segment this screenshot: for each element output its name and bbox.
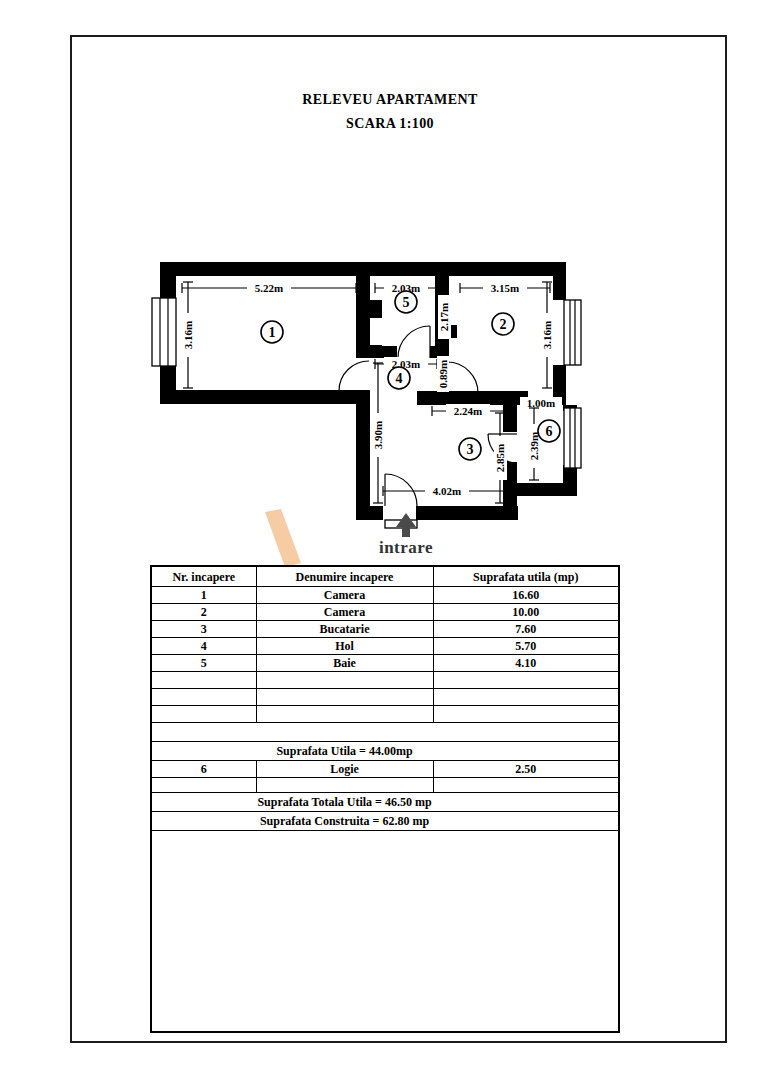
suprafata-construita-row: Suprafata Construita = 62.80 mp xyxy=(151,812,619,831)
document-scale: SCARA 1:100 xyxy=(8,116,764,132)
table-row: 5 Baie 4.10 xyxy=(151,655,619,672)
svg-text:5.22m: 5.22m xyxy=(255,282,283,294)
dim-logie-width: 1.00m xyxy=(520,397,562,409)
svg-text:3.90m: 3.90m xyxy=(372,421,384,449)
empty-span-row xyxy=(151,723,619,742)
svg-text:6: 6 xyxy=(546,424,553,439)
table-row: 1 Camera 16.60 xyxy=(151,587,619,604)
svg-text:4: 4 xyxy=(396,371,403,386)
room-label-1: 1 xyxy=(261,321,283,343)
table-row-logie: 6 Logie 2.50 xyxy=(151,761,619,778)
svg-text:2.24m: 2.24m xyxy=(454,405,482,417)
header-suprafata: Suprafata utila (mp) xyxy=(433,566,619,587)
svg-text:2.17m: 2.17m xyxy=(438,303,450,331)
cell-name: Camera xyxy=(256,604,433,621)
window-room1 xyxy=(152,298,176,366)
svg-text:1.00m: 1.00m xyxy=(527,397,555,409)
svg-text:5: 5 xyxy=(403,295,410,310)
empty-row xyxy=(151,672,619,689)
suprafata-utila-row: Suprafata Utila = 44.00mp xyxy=(151,742,619,761)
empty-row xyxy=(151,778,619,793)
dim-room2-width: 3.15m xyxy=(460,281,550,294)
header-nr: Nr. incapere xyxy=(151,566,256,587)
door-bathroom xyxy=(398,326,430,358)
watermark-stripe xyxy=(265,509,301,567)
cell-area: 5.70 xyxy=(433,638,619,655)
room-label-3: 3 xyxy=(459,438,481,460)
cell-nr: 5 xyxy=(151,655,256,672)
walls xyxy=(160,262,577,520)
svg-text:2.85m: 2.85m xyxy=(494,444,506,472)
dim-room1-width: 5.22m xyxy=(182,281,356,294)
window-logie xyxy=(564,408,581,468)
door-entrance xyxy=(385,474,417,528)
dim-room2-height: 3.16m xyxy=(541,282,554,388)
empty-row xyxy=(151,706,619,723)
entrance-arrow-icon xyxy=(396,513,416,537)
table-row: 3 Bucatarie 7.60 xyxy=(151,621,619,638)
suprafata-utila-label: Suprafata Utila = 44.00mp xyxy=(256,742,433,761)
cell-name: Bucatarie xyxy=(256,621,433,638)
cell-name: Camera xyxy=(256,587,433,604)
cell-nr: 2 xyxy=(151,604,256,621)
svg-text:3.16m: 3.16m xyxy=(541,321,553,349)
svg-text:4.02m: 4.02m xyxy=(433,485,461,497)
table-header-row: Nr. incapere Denumire incapere Suprafata… xyxy=(151,566,619,587)
dim-kitchen-top: 2.24m xyxy=(432,404,505,417)
dim-niche-height: 0.89m xyxy=(437,356,449,392)
svg-text:2.39m: 2.39m xyxy=(528,432,540,460)
svg-text:1: 1 xyxy=(269,325,276,340)
svg-text:3.16m: 3.16m xyxy=(182,321,194,349)
svg-text:0.89m: 0.89m xyxy=(437,360,449,388)
cell-name: Hol xyxy=(256,638,433,655)
cell-nr: 3 xyxy=(151,621,256,638)
cell-area: 4.10 xyxy=(433,655,619,672)
floor-plan: 5.22m 3.16m 2.03m 2.17m xyxy=(145,250,605,570)
dim-hall-width: 2.03m xyxy=(375,357,437,370)
cell-name: Logie xyxy=(256,761,433,778)
dim-room1-height: 3.16m xyxy=(182,282,195,388)
suprafata-totala-row: Suprafata Totala Utila = 46.50 mp xyxy=(151,793,619,812)
svg-text:3: 3 xyxy=(467,442,474,457)
notes-area-row xyxy=(151,831,619,1033)
header-denumire: Denumire incapere xyxy=(256,566,433,587)
dim-kitchen-bottom: 4.02m xyxy=(383,484,511,497)
svg-text:2: 2 xyxy=(500,317,507,332)
svg-text:3.15m: 3.15m xyxy=(491,282,519,294)
title-block: RELEVEU APARTAMENT SCARA 1:100 xyxy=(8,92,764,132)
table-row: 2 Camera 10.00 xyxy=(151,604,619,621)
area-table: Nr. incapere Denumire incapere Suprafata… xyxy=(150,565,620,1033)
room-label-4: 4 xyxy=(388,367,410,389)
cell-area: 10.00 xyxy=(433,604,619,621)
document-page: RELEVEU APARTAMENT SCARA 1:100 xyxy=(0,0,764,1080)
cell-area: 7.60 xyxy=(433,621,619,638)
dim-kitchen-left: 3.90m xyxy=(372,363,385,503)
document-title: RELEVEU APARTAMENT xyxy=(8,92,764,108)
door-room2 xyxy=(447,362,478,393)
empty-row xyxy=(151,689,619,706)
cell-nr: 6 xyxy=(151,761,256,778)
door-room1 xyxy=(339,361,369,391)
suprafata-construita-label: Suprafata Construita = 62.80 mp xyxy=(256,812,433,831)
entrance-label: intrare xyxy=(379,538,433,557)
room-label-5: 5 xyxy=(395,291,417,313)
room-label-2: 2 xyxy=(492,313,514,335)
cell-nr: 1 xyxy=(151,587,256,604)
window-room2 xyxy=(564,300,581,365)
dim-logie-height: 2.39m xyxy=(528,408,541,480)
cell-area: 16.60 xyxy=(433,587,619,604)
table-row: 4 Hol 5.70 xyxy=(151,638,619,655)
room-label-6: 6 xyxy=(538,420,560,442)
suprafata-totala-label: Suprafata Totala Utila = 46.50 mp xyxy=(256,793,433,812)
notes-area xyxy=(151,831,619,1033)
cell-name: Baie xyxy=(256,655,433,672)
cell-area: 2.50 xyxy=(433,761,619,778)
cell-nr: 4 xyxy=(151,638,256,655)
